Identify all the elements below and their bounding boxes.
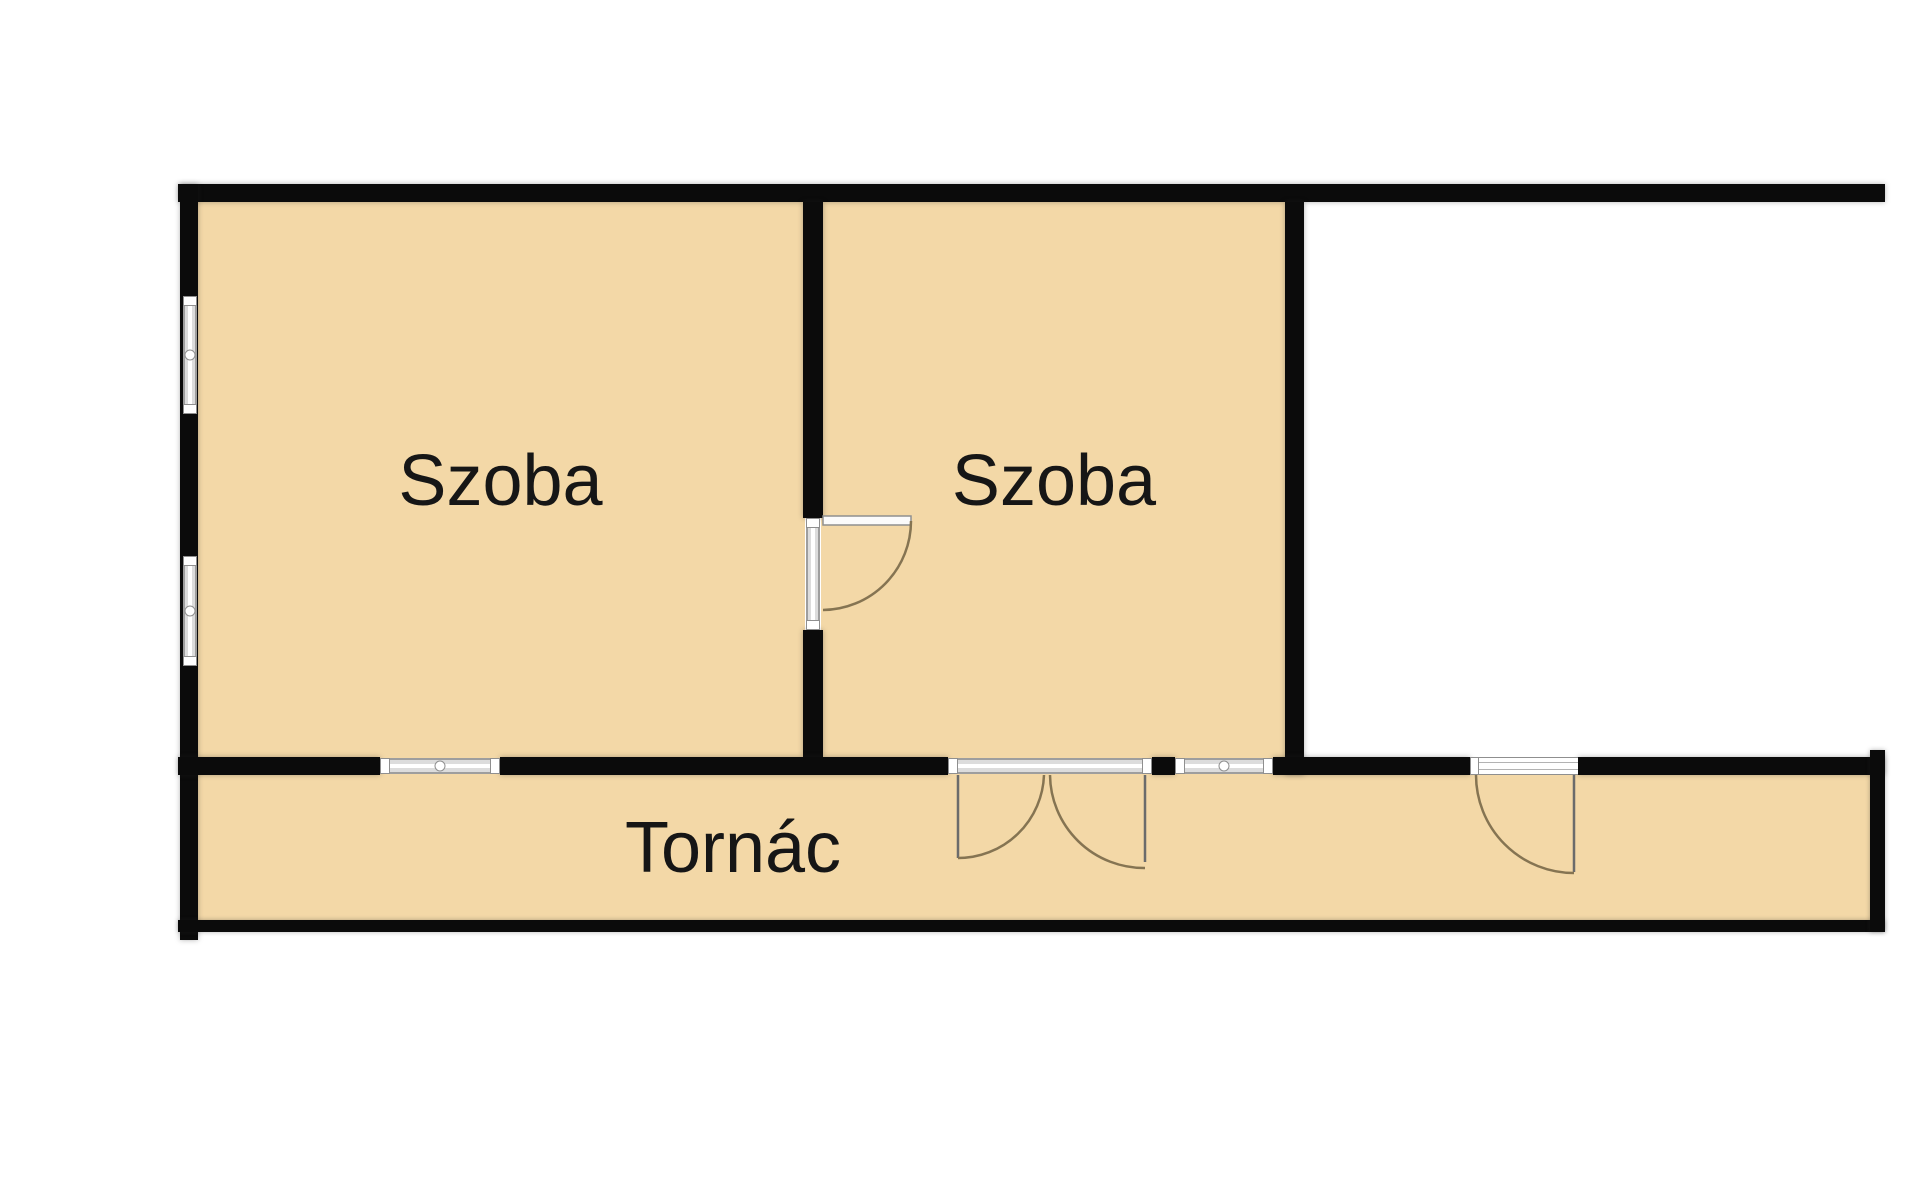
double-door-threshold: [948, 758, 1152, 774]
wall-mid-seg5: [1578, 757, 1885, 775]
room-label-szoba-2: Szoba: [821, 202, 1287, 759]
wall-mid-seg1: [178, 757, 380, 775]
szoba1-south-window-icon: [380, 758, 500, 774]
wall-divider1-lower: [803, 630, 823, 757]
floorplan-canvas: Szoba Szoba Tornác: [0, 0, 1920, 1178]
tornac-floor: [198, 773, 1872, 922]
room-label-szoba-1: Szoba: [196, 202, 805, 759]
szoba2-south-window-icon: [1175, 758, 1273, 774]
wall-divider2: [1285, 202, 1304, 775]
tornac-door-threshold: [1470, 757, 1578, 775]
left-wall-upper-window-icon: [183, 296, 197, 414]
wall-bottom: [178, 920, 1885, 932]
wall-divider1-upper: [803, 202, 823, 518]
szoba-door-threshold: [806, 518, 820, 630]
room-label-tornac: Tornác: [508, 773, 958, 922]
wall-top: [178, 184, 1885, 202]
wall-right-tornac: [1870, 750, 1885, 932]
wall-mid-seg4: [1273, 757, 1470, 775]
wall-mid-seg3: [1152, 757, 1175, 775]
left-wall-lower-window-icon: [183, 556, 197, 666]
